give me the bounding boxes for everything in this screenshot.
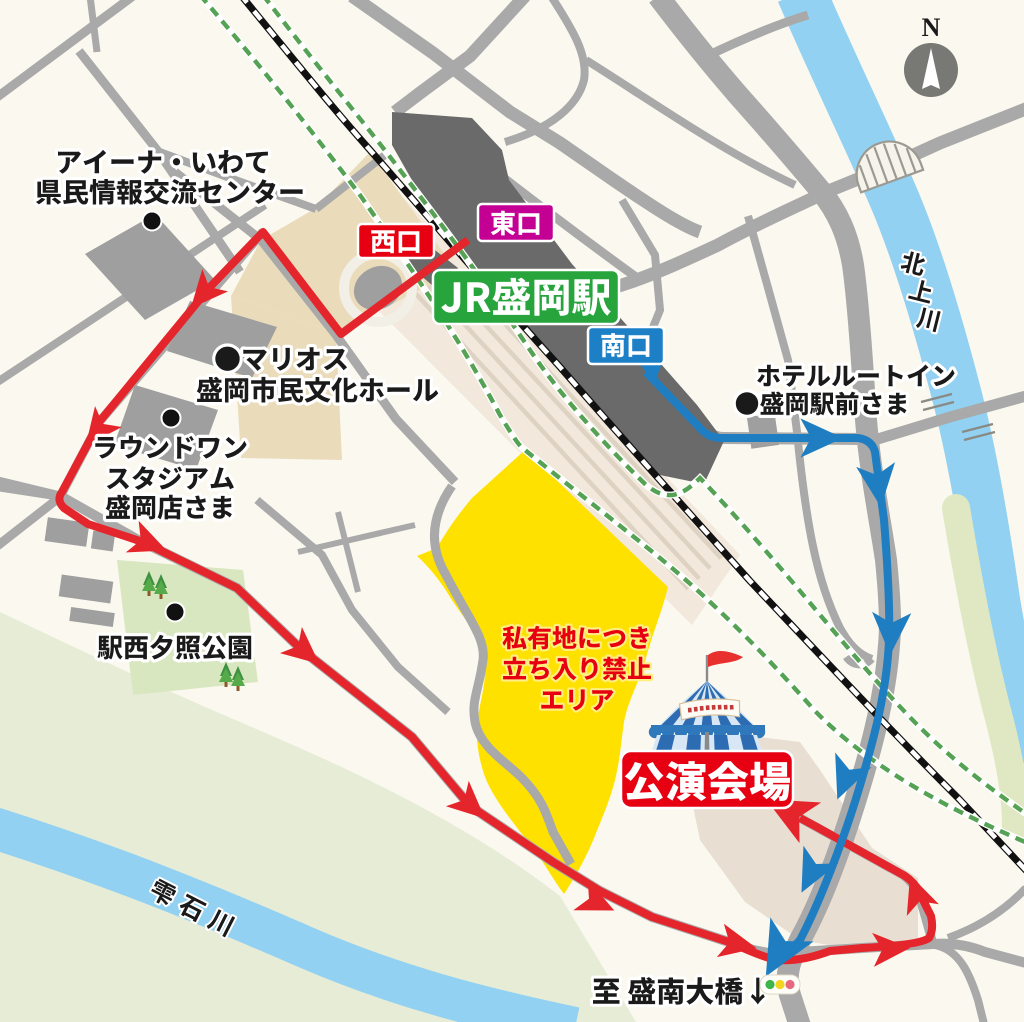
svg-text:N: N [922, 13, 941, 42]
